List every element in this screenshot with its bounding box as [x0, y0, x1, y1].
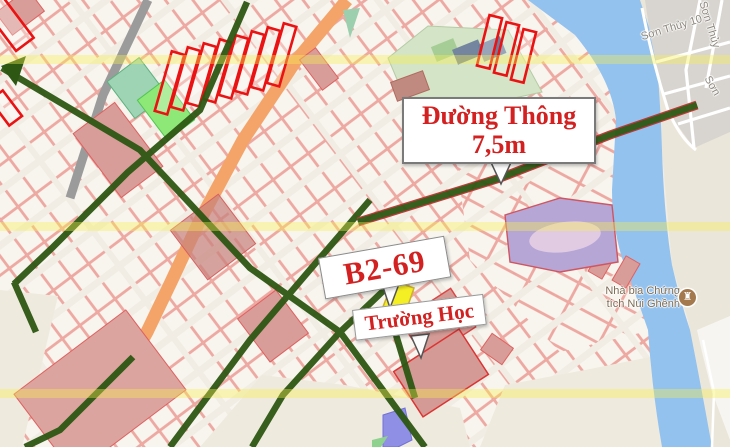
poi-label-line2: tích Núi Ghềnh: [590, 298, 680, 311]
poi-label-line1: Nhà bia Chứng: [590, 285, 680, 298]
map-graphics: [0, 0, 730, 447]
monument-icon[interactable]: ♜: [679, 289, 696, 306]
map-canvas[interactable]: Đường Thông 7,5m B2-69 Trường Học Sơn Th…: [0, 0, 730, 447]
road-width-label: Đường Thông 7,5m: [402, 97, 596, 164]
road-width-label-line2: 7,5m: [404, 130, 594, 159]
road-width-label-line1: Đường Thông: [404, 101, 594, 130]
poi-label: Nhà bia Chứng tích Núi Ghềnh: [590, 285, 680, 311]
